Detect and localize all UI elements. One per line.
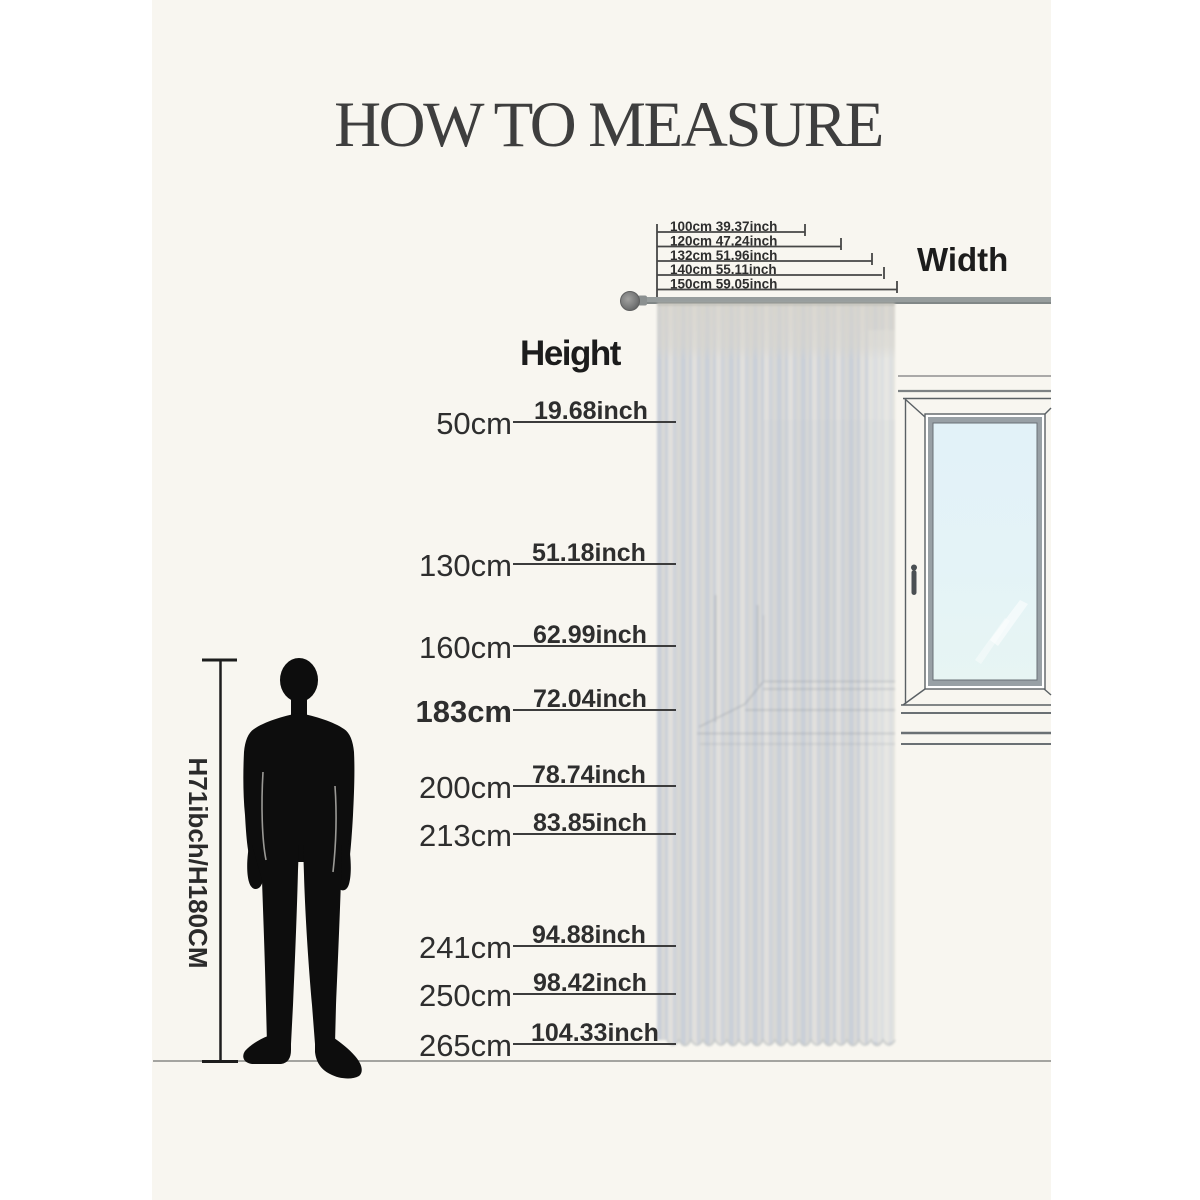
svg-text:265cm: 265cm — [419, 1028, 512, 1063]
svg-text:Height: Height — [520, 334, 622, 373]
svg-text:51.18inch: 51.18inch — [532, 539, 646, 567]
svg-text:72.04inch: 72.04inch — [533, 685, 647, 713]
svg-text:Width: Width — [917, 241, 1008, 278]
svg-text:H71ibch/H180CM: H71ibch/H180CM — [183, 758, 213, 969]
svg-text:200cm: 200cm — [419, 770, 512, 805]
svg-text:241cm: 241cm — [419, 930, 512, 965]
svg-text:100cm 39.37inch: 100cm 39.37inch — [670, 219, 777, 234]
svg-text:132cm 51.96inch: 132cm 51.96inch — [670, 248, 777, 263]
svg-text:140cm 55.11inch: 140cm 55.11inch — [670, 262, 777, 277]
svg-text:183cm: 183cm — [415, 694, 512, 729]
svg-text:104.33inch: 104.33inch — [531, 1019, 659, 1047]
svg-text:94.88inch: 94.88inch — [532, 921, 646, 949]
svg-text:HOW TO MEASURE: HOW TO MEASURE — [334, 89, 882, 161]
svg-text:62.99inch: 62.99inch — [533, 621, 647, 649]
svg-text:50cm: 50cm — [436, 406, 512, 441]
svg-text:213cm: 213cm — [419, 818, 512, 853]
svg-text:98.42inch: 98.42inch — [533, 969, 647, 997]
svg-text:83.85inch: 83.85inch — [533, 809, 647, 837]
svg-text:120cm 47.24inch: 120cm 47.24inch — [670, 234, 777, 249]
svg-text:250cm: 250cm — [419, 978, 512, 1013]
svg-text:150cm 59.05inch: 150cm 59.05inch — [670, 277, 777, 292]
svg-text:130cm: 130cm — [419, 548, 512, 583]
svg-text:19.68inch: 19.68inch — [534, 397, 648, 425]
svg-text:160cm: 160cm — [419, 630, 512, 665]
svg-text:78.74inch: 78.74inch — [532, 761, 646, 789]
